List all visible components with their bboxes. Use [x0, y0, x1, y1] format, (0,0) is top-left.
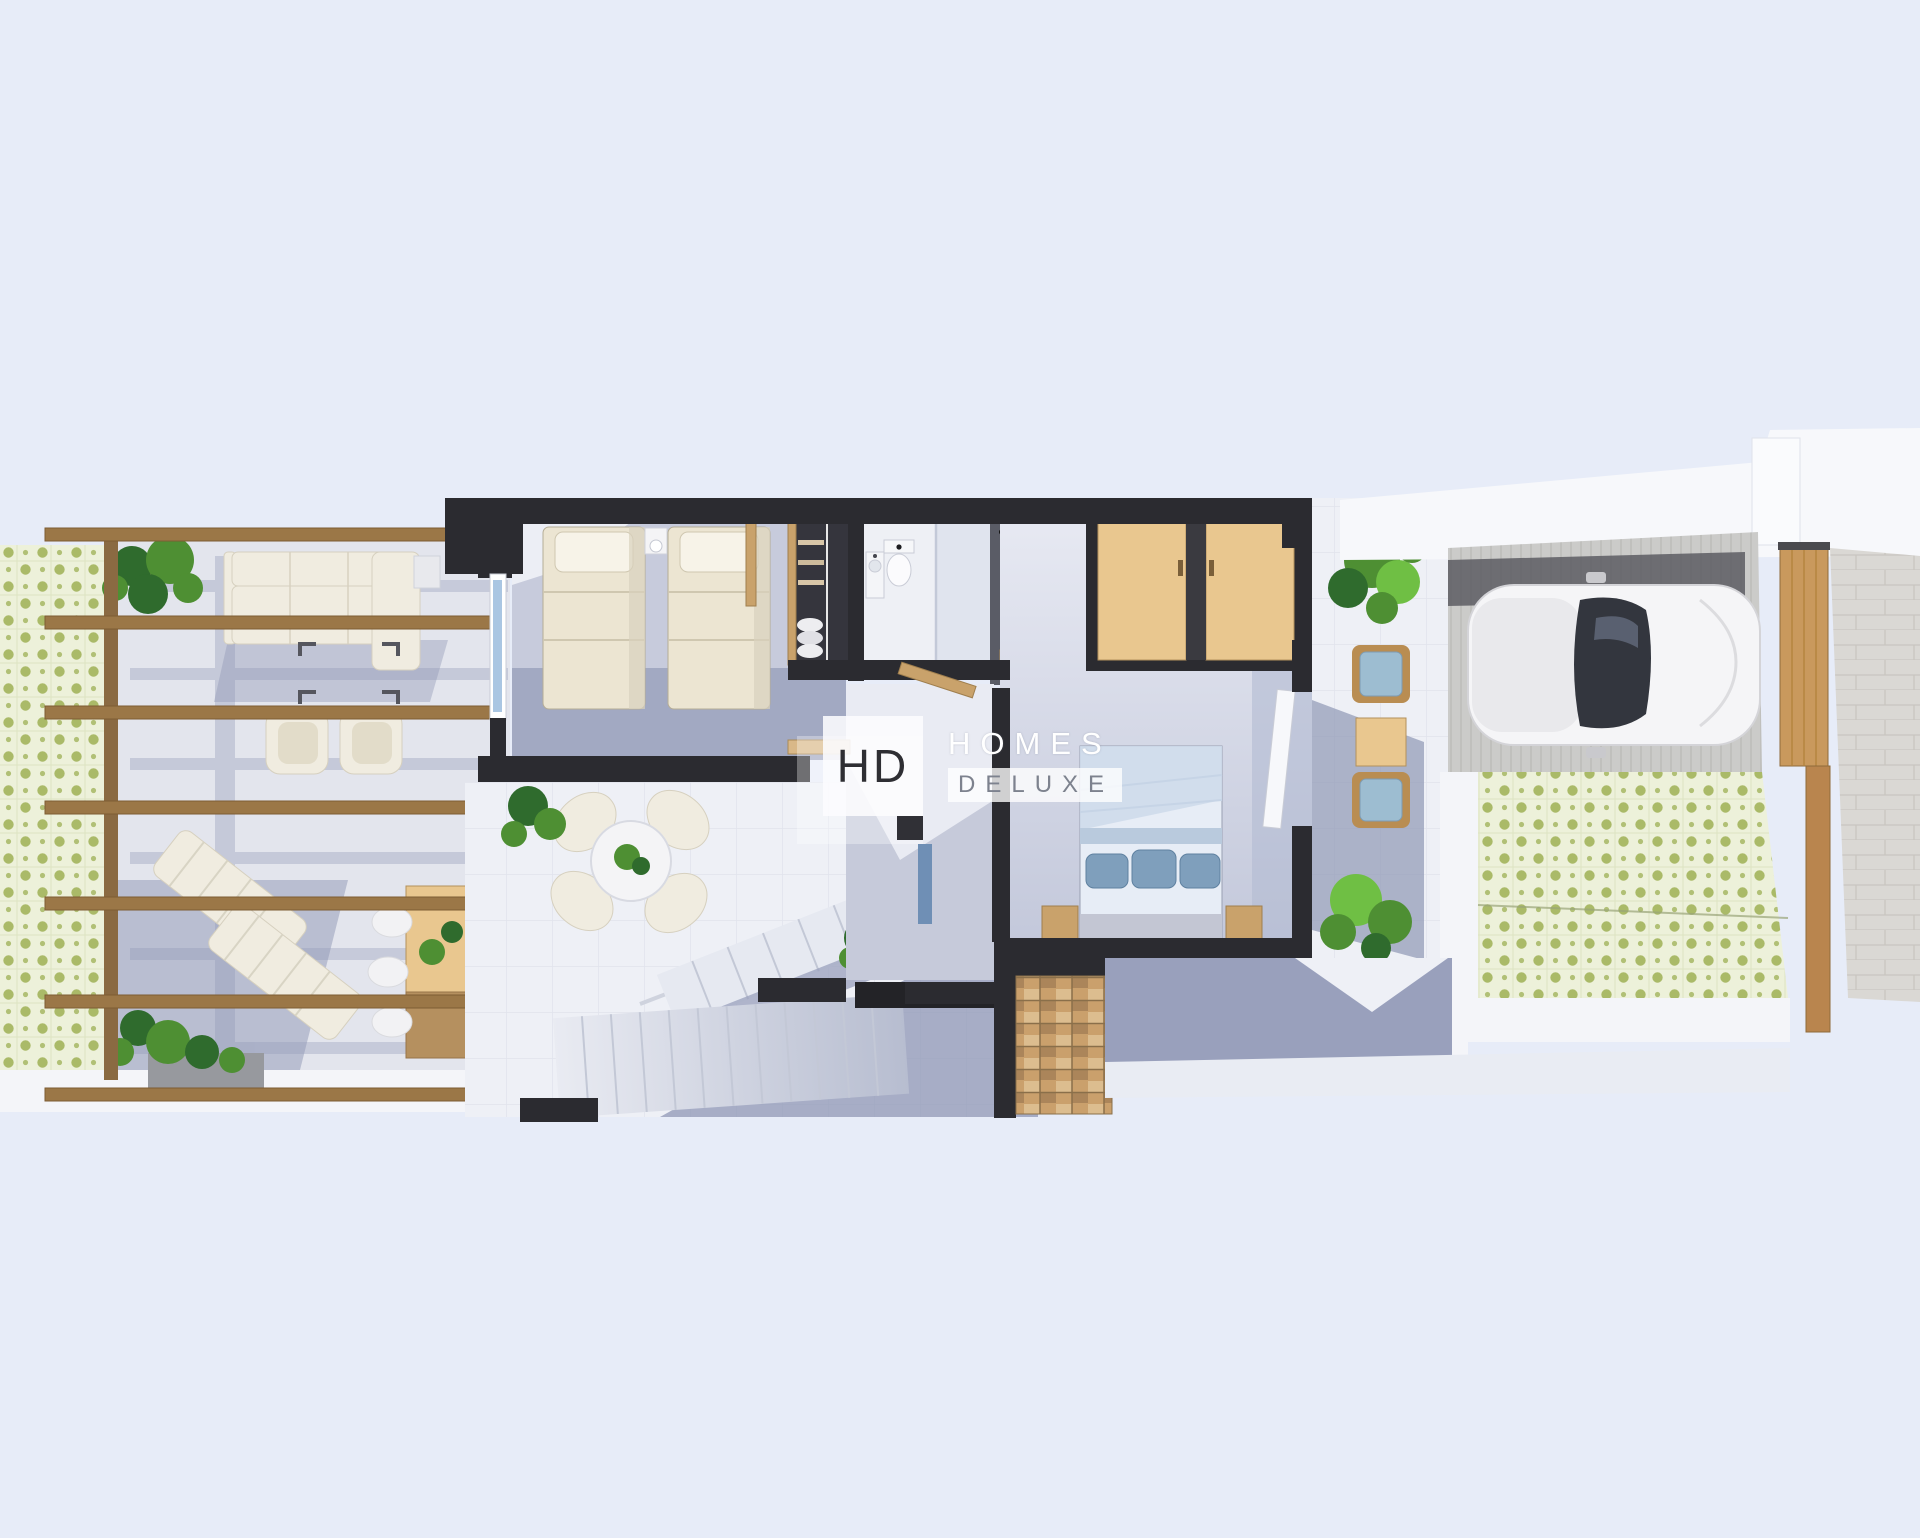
shower — [936, 515, 990, 663]
wooden-wardrobes — [1086, 503, 1312, 671]
door-frame — [746, 518, 756, 606]
blue-runner — [918, 844, 932, 924]
sink — [866, 552, 884, 598]
car — [1468, 572, 1760, 758]
terrace-chair-top — [1352, 645, 1410, 703]
double-bed — [1080, 746, 1222, 946]
mirror-left — [1586, 572, 1606, 583]
twin-bed-left — [543, 527, 645, 709]
twin-bedroom-south-wall — [478, 756, 810, 782]
wooden-steps — [1016, 976, 1112, 1114]
floorplan-scene — [0, 0, 1920, 1538]
south-wall-band — [1460, 998, 1790, 1042]
console-table — [788, 740, 850, 754]
green-drive — [1478, 772, 1788, 998]
terrace-table — [1356, 718, 1406, 766]
terrace-chair-bottom — [1352, 772, 1410, 828]
bottom-step-block — [520, 1098, 598, 1122]
pergola-terrace — [0, 528, 510, 1112]
master-bedroom — [1000, 503, 1312, 957]
bathroom-wall — [848, 513, 864, 681]
bathroom — [848, 513, 990, 681]
terrace-door — [490, 574, 506, 720]
nightstand-lamp — [645, 528, 667, 554]
gate-post — [1752, 438, 1800, 545]
floorplan-render: HD HOMES DELUXE — [0, 0, 1920, 1538]
mirror-right — [1586, 747, 1606, 758]
outdoor-dining-set — [368, 886, 478, 1058]
